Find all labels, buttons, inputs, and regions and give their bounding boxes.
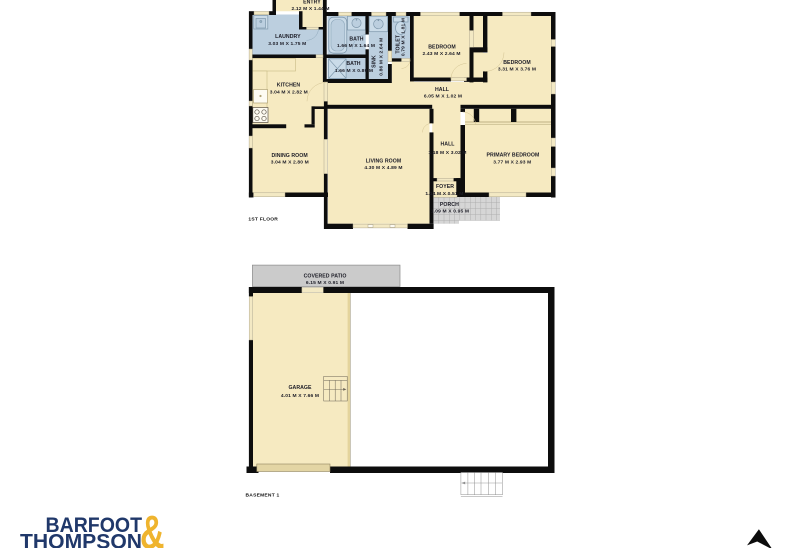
svg-text:BEDROOM: BEDROOM: [503, 60, 530, 66]
svg-text:3.04 M X 2.82 M: 3.04 M X 2.82 M: [270, 90, 308, 96]
svg-text:1ST FLOOR: 1ST FLOOR: [248, 217, 278, 223]
svg-text:HALL: HALL: [435, 87, 450, 93]
svg-text:2.43 M X 2.64 M: 2.43 M X 2.64 M: [423, 51, 461, 57]
svg-text:FOYER: FOYER: [436, 184, 454, 190]
svg-text:ENTRY: ENTRY: [303, 0, 321, 5]
svg-text:6.05 M X 1.02 M: 6.05 M X 1.02 M: [424, 93, 462, 99]
svg-text:KITCHEN: KITCHEN: [277, 83, 301, 89]
svg-text:1.18 M X 3.02 M: 1.18 M X 3.02 M: [428, 150, 466, 156]
svg-text:BATH: BATH: [349, 36, 363, 42]
svg-text:BASEMENT 1: BASEMENT 1: [246, 493, 280, 499]
svg-text:DINING ROOM: DINING ROOM: [271, 153, 307, 159]
svg-text:THOMPSON: THOMPSON: [20, 531, 142, 548]
svg-text:LIVING ROOM: LIVING ROOM: [366, 158, 401, 164]
svg-text:BEDROOM: BEDROOM: [428, 44, 455, 50]
svg-text:2.12 M X 1.44 M: 2.12 M X 1.44 M: [292, 6, 330, 12]
svg-text:&: &: [140, 506, 165, 548]
svg-text:4.30 M X 4.89 M: 4.30 M X 4.89 M: [364, 165, 402, 171]
svg-text:0.79 M X 1.81 M: 0.79 M X 1.81 M: [400, 18, 406, 56]
svg-text:3.77 M X 2.93 M: 3.77 M X 2.93 M: [493, 160, 531, 166]
svg-text:PRIMARY BEDROOM: PRIMARY BEDROOM: [486, 153, 539, 159]
svg-text:6.15 M X 0.91 M: 6.15 M X 0.91 M: [306, 280, 344, 286]
svg-text:3.04 M X 2.80 M: 3.04 M X 2.80 M: [271, 160, 309, 166]
svg-text:1.66 M X 0.89 M: 1.66 M X 0.89 M: [335, 68, 373, 74]
svg-text:1.66 M X 1.64 M: 1.66 M X 1.64 M: [337, 43, 375, 49]
svg-text:LAUNDRY: LAUNDRY: [275, 34, 301, 40]
svg-text:HALL: HALL: [440, 142, 455, 148]
svg-text:PORCH: PORCH: [440, 202, 459, 208]
svg-text:SINK: SINK: [372, 55, 378, 68]
svg-text:4.01 M X 7.66 M: 4.01 M X 7.66 M: [281, 393, 319, 399]
svg-text:COVERED PATIO: COVERED PATIO: [304, 273, 347, 279]
svg-text:1.14 M X 0.51 M: 1.14 M X 0.51 M: [425, 191, 463, 197]
svg-text:1.09 M X 0.95 M: 1.09 M X 0.95 M: [431, 209, 469, 215]
svg-text:TOILET: TOILET: [395, 34, 401, 53]
svg-text:GARAGE: GARAGE: [288, 385, 312, 391]
svg-text:0.86 M X 2.64 M: 0.86 M X 2.64 M: [379, 38, 385, 76]
svg-text:BATH: BATH: [346, 61, 360, 67]
svg-text:3.31 M X 3.76 M: 3.31 M X 3.76 M: [498, 66, 536, 72]
svg-text:3.03 M X 1.75 M: 3.03 M X 1.75 M: [268, 41, 306, 47]
